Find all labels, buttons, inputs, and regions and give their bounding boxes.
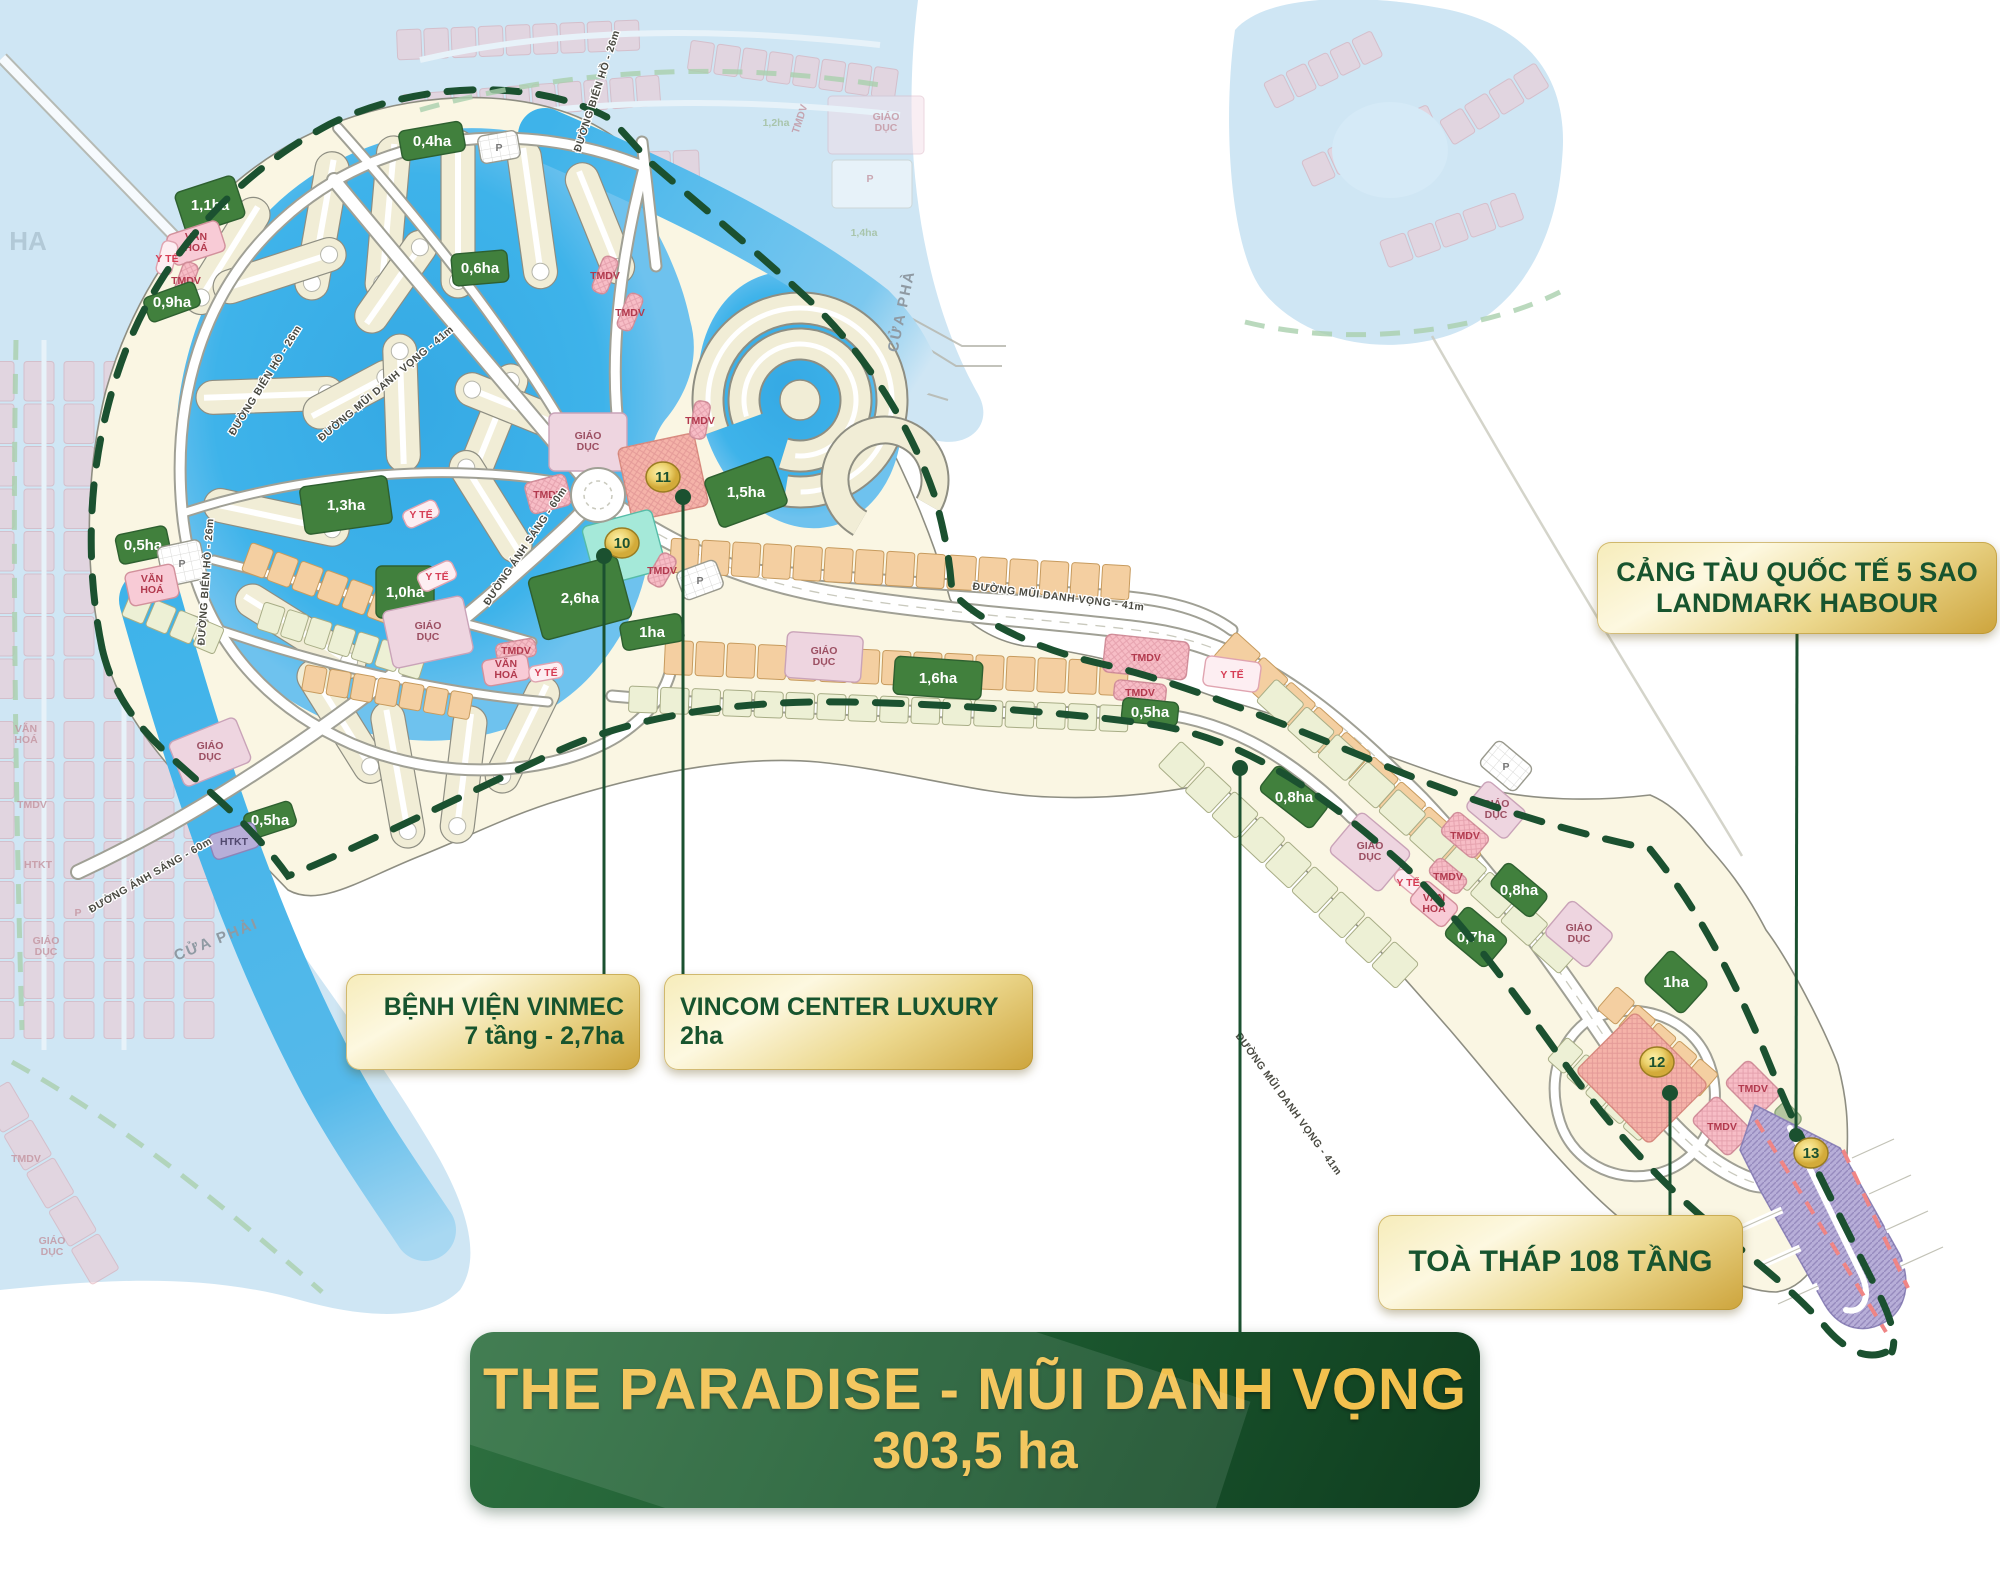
ghost-label: GIÁODỤC bbox=[33, 934, 60, 958]
ghost-label: P bbox=[74, 907, 81, 919]
roundabout bbox=[571, 468, 625, 522]
vincom-line1: VINCOM CENTER LUXURY bbox=[680, 993, 1033, 1022]
callout-vincom-center: VINCOM CENTER LUXURY 2ha bbox=[664, 974, 1033, 1070]
svg-text:TMDV: TMDV bbox=[1450, 830, 1480, 842]
svg-text:GIÁODỤC: GIÁODỤC bbox=[197, 739, 224, 763]
ghost-label: 1,2ha bbox=[763, 117, 790, 129]
svg-text:1,6ha: 1,6ha bbox=[919, 670, 958, 687]
svg-text:0,8ha: 0,8ha bbox=[1275, 789, 1314, 806]
svg-text:11: 11 bbox=[655, 469, 671, 486]
svg-text:Y TẾ: Y TẾ bbox=[1396, 876, 1419, 889]
parcel-school: GIÁODỤC bbox=[784, 631, 863, 682]
svg-text:Y TẾ: Y TẾ bbox=[409, 508, 432, 521]
svg-text:1ha: 1ha bbox=[1663, 974, 1690, 991]
ghost-label: TMDV bbox=[11, 1153, 41, 1165]
ghost-label: HTKT bbox=[24, 859, 53, 871]
svg-text:TMDV: TMDV bbox=[685, 415, 715, 427]
svg-text:TMDV: TMDV bbox=[1131, 652, 1161, 664]
svg-text:1,3ha: 1,3ha bbox=[327, 497, 366, 514]
svg-text:1,5ha: 1,5ha bbox=[727, 484, 766, 501]
parcel-school: GIÁODỤC bbox=[549, 413, 627, 471]
callout-landmark-harbour: CẢNG TÀU QUỐC TẾ 5 SAO LANDMARK HABOUR bbox=[1597, 542, 1997, 634]
parcel-park: 0,6ha bbox=[451, 250, 510, 287]
ghost-label: VĂNHOÁ bbox=[14, 722, 38, 746]
map-marker-12: 12 bbox=[1640, 1047, 1674, 1077]
parcel-parking: P bbox=[477, 130, 521, 165]
svg-text:TMDV: TMDV bbox=[615, 307, 645, 319]
svg-text:GIÁODỤC: GIÁODỤC bbox=[415, 619, 442, 643]
vinmec-line2: 7 tầng - 2,7ha bbox=[346, 1022, 624, 1051]
svg-text:0,5ha: 0,5ha bbox=[251, 812, 290, 829]
ghost-label: P bbox=[866, 173, 873, 185]
svg-text:VĂNHOÁ: VĂNHOÁ bbox=[494, 657, 518, 681]
svg-text:GIÁODỤC: GIÁODỤC bbox=[1357, 839, 1384, 863]
svg-text:P: P bbox=[178, 558, 185, 570]
harbour-line2: LANDMARK HABOUR bbox=[1597, 588, 1997, 619]
svg-text:GIÁODỤC: GIÁODỤC bbox=[1566, 921, 1593, 945]
master-plan-screenshot: 0,4haP1,1haVĂNHOÁY TẾTMDV0,9ha0,6ha1,3ha… bbox=[0, 0, 2000, 1576]
svg-text:P: P bbox=[495, 142, 502, 154]
svg-text:GIÁODỤC: GIÁODỤC bbox=[811, 644, 838, 668]
svg-text:TMDV: TMDV bbox=[1433, 871, 1463, 883]
svg-text:GIÁODỤC: GIÁODỤC bbox=[575, 429, 602, 453]
svg-text:1,0ha: 1,0ha bbox=[386, 584, 425, 601]
svg-text:Y TẾ: Y TẾ bbox=[155, 252, 178, 265]
svg-text:Y TẾ: Y TẾ bbox=[1220, 668, 1243, 681]
svg-text:P: P bbox=[696, 575, 703, 587]
svg-text:0,8ha: 0,8ha bbox=[1500, 882, 1539, 899]
vinmec-line1: BỆNH VIỆN VINMEC bbox=[346, 993, 624, 1022]
vincom-line2: 2ha bbox=[680, 1022, 1033, 1051]
svg-text:0,5ha: 0,5ha bbox=[1131, 704, 1170, 721]
project-title-banner: THE PARADISE - MŨI DANH VỌNG 303,5 ha bbox=[470, 1332, 1480, 1508]
svg-text:0,4ha: 0,4ha bbox=[413, 133, 452, 150]
callout-108-tower: TOÀ THÁP 108 TẦNG bbox=[1378, 1215, 1743, 1310]
ghost-label: GIÁODỤC bbox=[39, 1234, 66, 1258]
svg-text:0,9ha: 0,9ha bbox=[153, 294, 192, 311]
svg-text:P: P bbox=[1502, 761, 1509, 773]
svg-text:0,6ha: 0,6ha bbox=[461, 260, 500, 277]
ghost-label: TMDV bbox=[17, 799, 47, 811]
svg-text:Y TẾ: Y TẾ bbox=[534, 666, 557, 679]
parcel-park: 1,6ha bbox=[893, 656, 983, 700]
svg-text:TMDV: TMDV bbox=[1738, 1083, 1768, 1095]
svg-text:13: 13 bbox=[1803, 1145, 1820, 1162]
svg-text:VĂNHOÁ: VĂNHOÁ bbox=[140, 572, 164, 596]
svg-text:TMDV: TMDV bbox=[590, 270, 620, 282]
svg-text:1ha: 1ha bbox=[639, 624, 666, 641]
ghost-label: GIÁODỤC bbox=[873, 110, 900, 134]
svg-text:TMDV: TMDV bbox=[647, 565, 677, 577]
project-title: THE PARADISE - MŨI DANH VỌNG bbox=[483, 1358, 1467, 1422]
callout-vinmec-hospital: BỆNH VIỆN VINMEC 7 tầng - 2,7ha bbox=[346, 974, 640, 1070]
harbour-line1: CẢNG TÀU QUỐC TẾ 5 SAO bbox=[1597, 557, 1997, 588]
ghost-label: 1,4ha bbox=[851, 227, 878, 239]
ghost-label: HA bbox=[9, 226, 47, 256]
svg-text:2,6ha: 2,6ha bbox=[561, 590, 600, 607]
svg-text:Y TẾ: Y TẾ bbox=[425, 570, 448, 583]
svg-text:10: 10 bbox=[614, 535, 631, 552]
map-marker-11: 11 bbox=[646, 462, 680, 492]
leader-harbour bbox=[1796, 634, 1797, 1135]
svg-text:TMDV: TMDV bbox=[1707, 1121, 1737, 1133]
svg-text:12: 12 bbox=[1649, 1054, 1666, 1071]
project-area: 303,5 ha bbox=[872, 1422, 1077, 1482]
map-marker-13: 13 bbox=[1794, 1138, 1828, 1168]
svg-text:HTKT: HTKT bbox=[220, 836, 249, 848]
tower-line1: TOÀ THÁP 108 TẦNG bbox=[1378, 1245, 1743, 1280]
road-label: ĐƯỜNG MŨI DANH VỌNG - 41m bbox=[1233, 1030, 1345, 1178]
